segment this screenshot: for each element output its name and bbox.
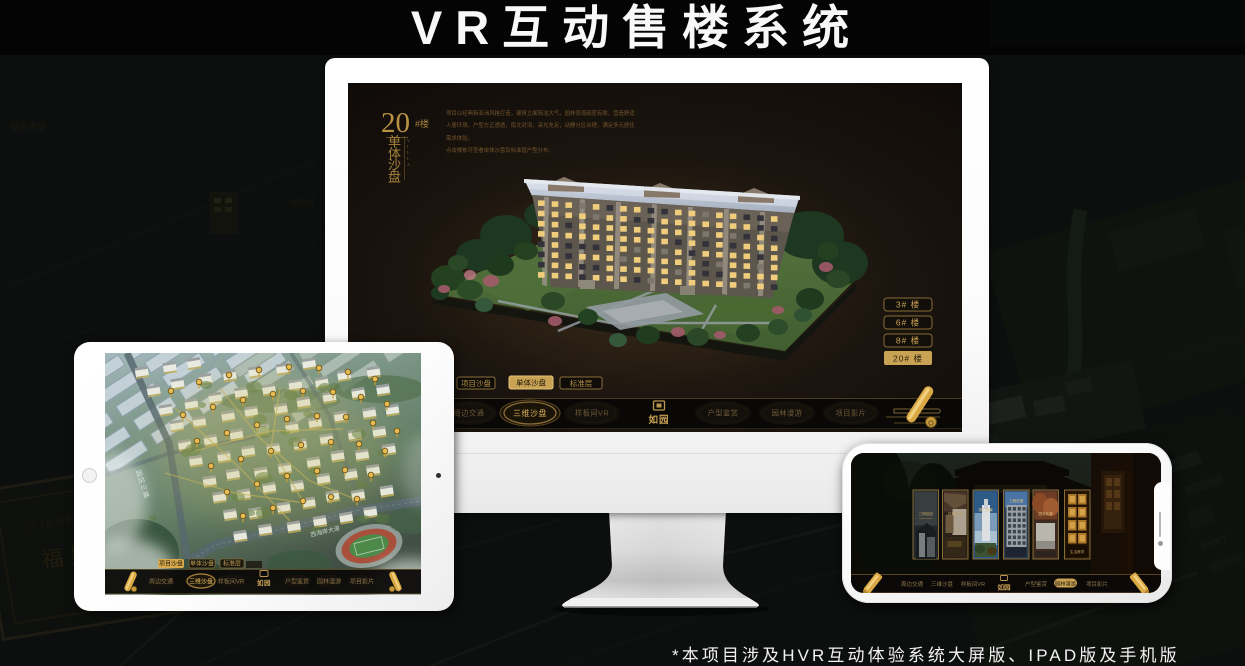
svg-text:需求体验。: 需求体验。 [446,134,473,142]
svg-text:样板空间: 样板空间 [948,511,963,516]
svg-text:工程进度: 工程进度 [1009,498,1024,503]
svg-text:20# 楼: 20# 楼 [893,354,923,364]
svg-text:点击楼栋可查看单体沙盘及标准层户型分布。: 点击楼栋可查看单体沙盘及标准层户型分布。 [446,146,554,154]
svg-text:健康城: 健康城 [290,197,314,207]
svg-text:如园: 如园 [648,414,669,426]
svg-text:V: V [407,138,410,143]
svg-text:3# 楼: 3# 楼 [896,300,920,310]
svg-text:园林漫游: 园林漫游 [1055,579,1077,587]
svg-text:人居环境。户型方正通透，南北对流，采光充足，动静分区合理，满: 人居环境。户型方正通透，南北对流，采光充足，动静分区合理，满足多元居住 [446,121,635,129]
svg-text:户型鉴赏: 户型鉴赏 [708,409,739,418]
svg-text:三维沙盘: 三维沙盘 [189,578,213,586]
svg-text:A: A [407,162,410,167]
svg-text:项目以经典新亚洲风格打造，建筑立面简洁大气，园林景观疏密有致: 项目以经典新亚洲风格打造，建筑立面简洁大气，园林景观疏密有致，营造舒适 [446,109,635,117]
svg-text:施工实景: 施工实景 [979,507,994,512]
svg-text:周边交通: 周边交通 [149,578,173,586]
svg-text:盘: 盘 [388,169,401,184]
svg-text:项目沙盘: 项目沙盘 [461,378,491,388]
svg-text:单体沙盘: 单体沙盘 [190,560,214,568]
svg-text:#楼: #楼 [415,118,429,129]
svg-text:园林实景: 园林实景 [1039,511,1054,516]
svg-text:三期组团: 三期组团 [919,511,934,516]
svg-text:项目影片: 项目影片 [836,409,867,418]
svg-text:8# 楼: 8# 楼 [896,336,920,346]
svg-text:三维沙盘: 三维沙盘 [513,408,547,418]
svg-text:项目沙盘: 项目沙盘 [159,560,183,568]
svg-text:三维沙盘: 三维沙盘 [931,580,954,588]
svg-text:户型鉴赏: 户型鉴赏 [1025,580,1048,588]
svg-text:样板间VR: 样板间VR [218,578,245,586]
svg-text:样板间VR: 样板间VR [961,580,985,588]
svg-text:标准层: 标准层 [223,560,241,568]
svg-text:标准层: 标准层 [570,378,593,388]
svg-text:户型鉴赏: 户型鉴赏 [285,578,309,586]
svg-text:单体沙盘: 单体沙盘 [516,378,546,388]
svg-text:福星惠誉: 福星惠誉 [10,121,46,132]
svg-text:6# 楼: 6# 楼 [896,318,920,328]
svg-text:周边交通: 周边交通 [454,409,485,418]
svg-text:项目影片: 项目影片 [1086,580,1108,588]
svg-text:周边交通: 周边交通 [901,580,924,588]
svg-text:如园: 如园 [257,578,271,587]
svg-text:园林漫游: 园林漫游 [317,578,341,586]
svg-text:生活美学: 生活美学 [1070,549,1085,554]
svg-text:如园: 如园 [998,583,1012,592]
svg-text:样板间VR: 样板间VR [575,409,609,418]
svg-text:项目影片: 项目影片 [350,578,374,586]
svg-text:园林漫游: 园林漫游 [772,409,803,418]
